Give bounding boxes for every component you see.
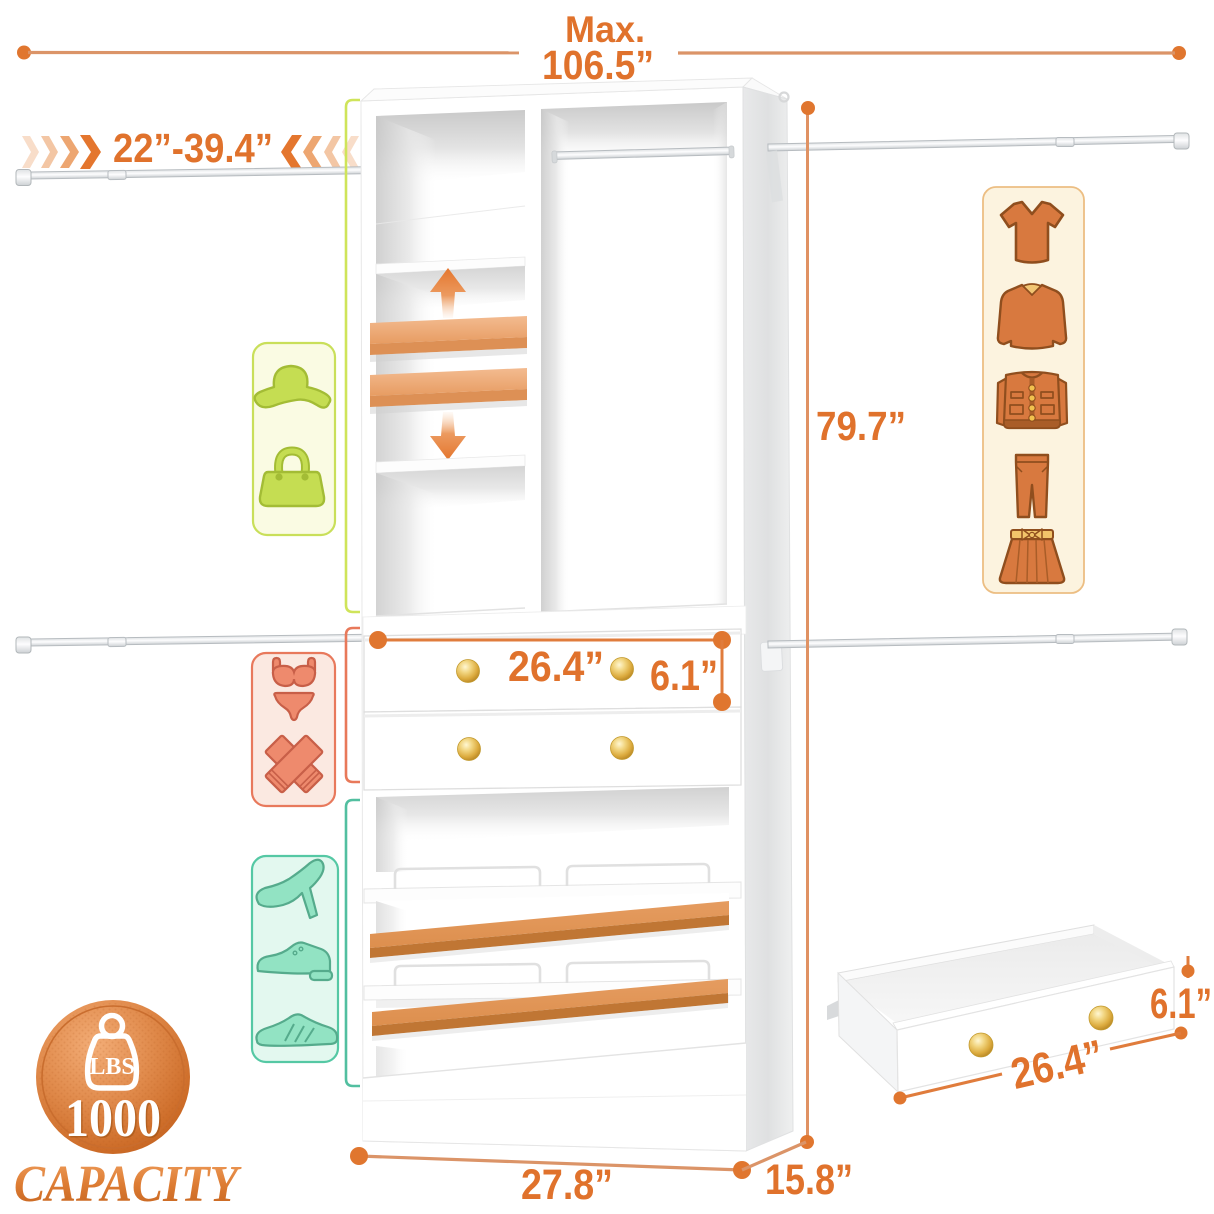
svg-text:27.8”: 27.8” — [521, 1161, 613, 1209]
svg-text:1000: 1000 — [65, 1088, 161, 1148]
svg-text:CAPACITY: CAPACITY — [14, 1156, 242, 1213]
svg-text:22”-39.4”: 22”-39.4” — [113, 125, 273, 171]
svg-text:26.4”: 26.4” — [508, 643, 604, 691]
svg-text:LBS: LBS — [89, 1054, 134, 1080]
svg-text:15.8”: 15.8” — [765, 1156, 853, 1204]
svg-text:6.1”: 6.1” — [1150, 980, 1212, 1028]
svg-text:6.1”: 6.1” — [650, 652, 718, 700]
svg-text:79.7”: 79.7” — [816, 403, 906, 449]
